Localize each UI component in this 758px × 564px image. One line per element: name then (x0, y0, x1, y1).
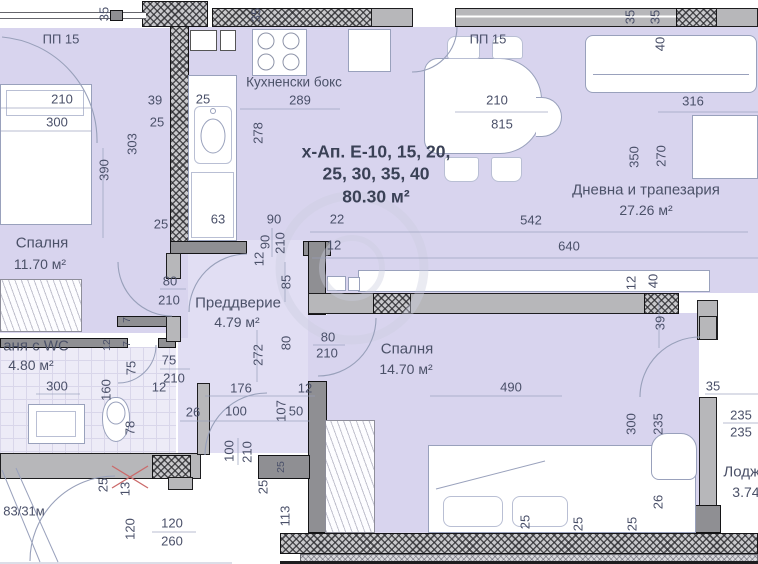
title-line: х-Ап. Е-10, 15, 20, (302, 143, 451, 161)
dimension-label: 210 (241, 441, 254, 463)
dimension-label: 235 (730, 409, 752, 422)
dimension-label: 35 (624, 10, 637, 24)
dimension-label: 90 (259, 235, 272, 249)
dimension-label: 210 (316, 347, 338, 360)
dimension-label: 640 (558, 240, 580, 253)
dimension-label: 107 (275, 400, 288, 422)
dimension-label: 80 (280, 336, 293, 350)
room-name: аня с WC (3, 339, 69, 354)
dimension-label: 12 (298, 382, 312, 395)
dimension-label: 210 (158, 294, 180, 307)
room-area: 4.79 м² (214, 315, 259, 329)
dimension-label: 80 (163, 275, 177, 288)
dimension-label: 78 (124, 421, 137, 435)
dimension-label: 120 (161, 517, 183, 530)
dimension-label: 26 (652, 495, 665, 509)
dimension-label: 35 (250, 8, 263, 22)
dimension-label: 210 (486, 94, 508, 107)
room-area: 11.70 м² (14, 257, 66, 271)
labels-layer: 35ПП 15210300390303392525352892782563902… (0, 0, 758, 564)
dimension-label: 490 (500, 381, 522, 394)
title-line: 80.30 м² (342, 188, 409, 206)
dimension-label: 210 (163, 372, 185, 385)
dimension-label: 75 (125, 361, 138, 375)
room-name: Преддверие (195, 296, 281, 311)
room-area: 4.80 м² (8, 358, 53, 372)
dimension-label: 25 (257, 480, 270, 494)
dimension-label: 35 (649, 10, 662, 24)
floor-plan: 35ПП 15210300390303392525352892782563902… (0, 0, 758, 564)
room-name: Кухненски бокс (246, 75, 342, 89)
dimension-label: 113 (279, 506, 292, 527)
dimension-label: 83/31м (3, 505, 44, 518)
dimension-label: 35 (98, 7, 111, 21)
room-area: 3.74 м² (732, 485, 758, 499)
dimension-label: 350 (628, 146, 641, 168)
dimension-label: 39 (654, 316, 667, 330)
dimension-label: 100 (225, 405, 247, 418)
dimension-label: 22 (330, 213, 344, 226)
dimension-label: 300 (46, 380, 68, 393)
dimension-label: 12 (253, 252, 266, 266)
dimension-label: 12 (152, 381, 166, 394)
dimension-label: 12 (327, 239, 341, 252)
room-area: 27.26 м² (619, 203, 672, 217)
dimension-label: 289 (289, 94, 311, 107)
dimension-label: 176 (230, 382, 252, 395)
dimension-label: 25 (276, 461, 287, 473)
room-name: Дневна и трапезария (572, 183, 720, 198)
dimension-label: 270 (655, 145, 668, 167)
dimension-label: 26 (186, 406, 200, 419)
dimension-label: 12 (102, 339, 113, 351)
dimension-label: 303 (126, 133, 139, 155)
dimension-label: 260 (161, 535, 183, 548)
dimension-label: 210 (274, 232, 287, 254)
dimension-label: 25 (626, 517, 639, 531)
dimension-label: 13 (119, 482, 132, 496)
dimension-label: 160 (100, 379, 113, 401)
dimension-label: 25 (519, 515, 532, 529)
dimension-label: 25 (150, 116, 164, 129)
dimension-label: 25 (196, 93, 210, 106)
dimension-label: 25 (97, 478, 110, 492)
dimension-label: 25 (572, 517, 585, 531)
dimension-label: 63 (211, 213, 225, 226)
dimension-label: 75 (162, 354, 176, 367)
dimension-label: 235 (730, 426, 752, 439)
dimension-label: 90 (267, 213, 281, 226)
dimension-label: 25 (154, 218, 168, 231)
room-name: Спалня (16, 236, 68, 251)
dimension-label: 235 (652, 413, 665, 435)
dimension-label: 300 (625, 413, 638, 435)
dimension-label: 390 (98, 159, 111, 181)
dimension-label: ПП 15 (43, 33, 80, 46)
dimension-label: 7 (122, 317, 133, 323)
dimension-label: 35 (706, 380, 720, 393)
dimension-label: 7 (122, 341, 133, 347)
dimension-label: 542 (520, 214, 542, 227)
dimension-label: 85 (280, 275, 293, 289)
room-name: Лоджия (723, 465, 758, 480)
dimension-label: ПП 15 (470, 33, 507, 46)
dimension-label: 210 (51, 93, 73, 106)
dimension-label: 300 (46, 116, 68, 129)
dimension-label: 316 (682, 95, 704, 108)
dimension-label: 120 (124, 518, 137, 540)
dimension-label: 40 (654, 37, 667, 51)
room-name: Спалня (381, 342, 433, 357)
dimension-label: 40 (647, 274, 660, 288)
dimension-label: 80 (321, 331, 335, 344)
dimension-label: 50 (289, 405, 303, 418)
dimension-label: 100 (223, 440, 236, 462)
room-area: 14.70 м² (379, 362, 432, 376)
dimension-label: 12 (625, 276, 638, 290)
dimension-label: 815 (491, 118, 513, 131)
dimension-label: 272 (252, 344, 265, 366)
title-line: 25, 30, 35, 40 (322, 165, 429, 183)
dimension-label: 39 (148, 94, 162, 107)
dimension-label: 278 (252, 122, 265, 144)
